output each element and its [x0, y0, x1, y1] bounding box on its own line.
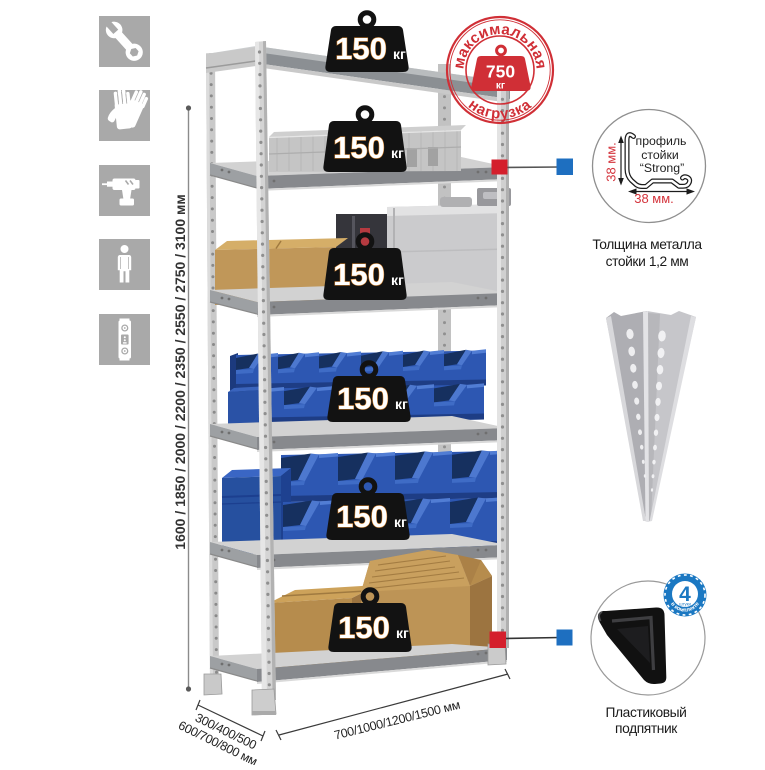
svg-text:кг: кг [393, 46, 406, 62]
svg-text:150: 150 [333, 257, 385, 292]
svg-text:кг: кг [391, 145, 404, 161]
svg-text:150: 150 [337, 381, 389, 416]
svg-text:38 мм.: 38 мм. [604, 142, 619, 182]
svg-text:Пластиковый: Пластиковый [606, 705, 687, 720]
svg-text:150: 150 [335, 31, 387, 66]
svg-text:150: 150 [336, 499, 388, 534]
svg-text:750: 750 [486, 62, 515, 82]
svg-text:кг: кг [394, 514, 407, 530]
svg-text:кг: кг [396, 625, 409, 641]
svg-text:подпятник: подпятник [615, 721, 678, 736]
svg-text:Толщина металла: Толщина металла [592, 237, 702, 252]
svg-text:профиль: профиль [636, 134, 687, 148]
svg-text:“Strong”: “Strong” [640, 161, 684, 175]
svg-text:кг: кг [496, 81, 505, 92]
svg-text:штуки: штуки [679, 602, 691, 607]
svg-text:кг: кг [395, 396, 408, 412]
svg-text:стойки 1,2 мм: стойки 1,2 мм [606, 254, 689, 269]
svg-text:38 мм.: 38 мм. [634, 191, 674, 206]
svg-text:кг: кг [391, 272, 404, 288]
svg-text:150: 150 [338, 610, 390, 645]
svg-text:150: 150 [333, 130, 385, 165]
svg-text:стойки: стойки [641, 148, 679, 162]
svg-text:1600 / 1850 / 2000 / 2200 / 23: 1600 / 1850 / 2000 / 2200 / 2350 / 2550 … [172, 194, 188, 549]
